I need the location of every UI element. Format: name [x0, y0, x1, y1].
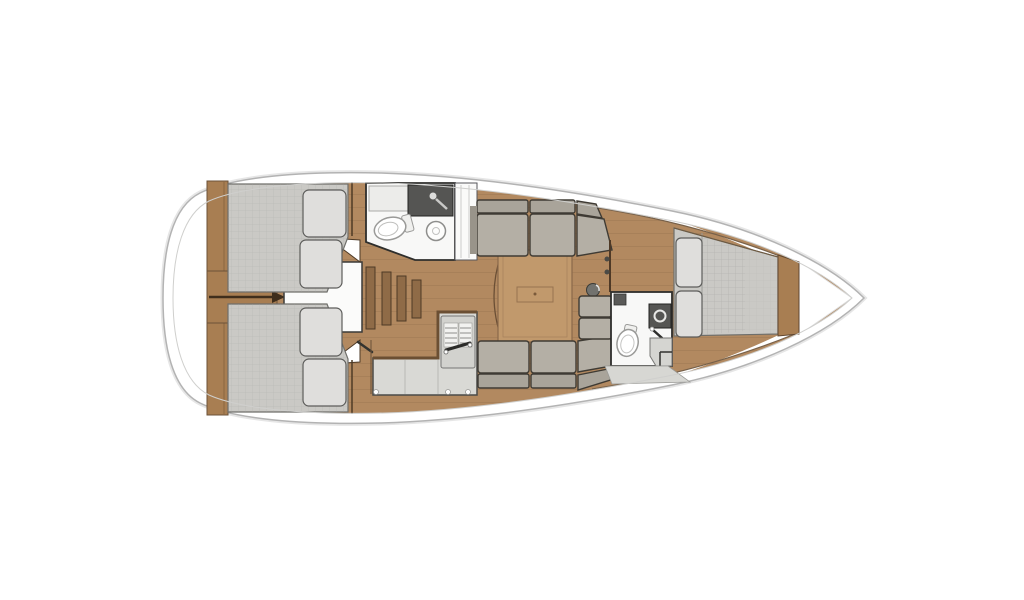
faucet-tip	[650, 327, 654, 331]
door-hinge	[605, 270, 610, 275]
l-seat	[579, 296, 612, 339]
berth-quilting-light	[745, 247, 778, 334]
aft-head	[366, 183, 477, 260]
counter-hinge	[466, 390, 471, 395]
counter-hinge	[374, 390, 379, 395]
backrest-cushion	[477, 200, 528, 213]
counter-hinge	[446, 390, 451, 395]
seat-cushion	[477, 214, 528, 256]
sofa-port	[470, 200, 612, 256]
step-riser	[366, 267, 375, 329]
backrest-cushion	[478, 374, 529, 388]
aft-cabin-starboard	[228, 304, 352, 414]
wall-cabinet	[614, 294, 626, 305]
pillows	[676, 238, 702, 337]
door-hinge	[605, 257, 610, 262]
pillow	[676, 291, 702, 337]
bow-trim	[778, 255, 799, 336]
shower-tray	[369, 186, 408, 211]
pillow	[300, 240, 342, 288]
pillow	[303, 359, 346, 406]
stove-knob	[444, 350, 448, 354]
stove-knob	[468, 343, 472, 347]
seat-cushion	[579, 296, 612, 317]
seat-cushion	[579, 318, 612, 339]
sofa-starboard	[478, 336, 617, 390]
step-riser	[412, 280, 421, 318]
saloon-table	[498, 250, 572, 342]
pillow	[303, 190, 346, 237]
step-riser	[382, 272, 391, 325]
boat-layout-canvas	[0, 0, 1024, 600]
berth-quilting	[702, 235, 745, 335]
deck-plan-svg	[0, 0, 1024, 600]
sink-counter	[408, 185, 453, 216]
aft-cabin-port	[228, 182, 352, 292]
sofa-arm	[470, 206, 477, 254]
seat-cushion	[530, 214, 575, 256]
step-riser	[397, 276, 406, 321]
round-basin	[427, 222, 446, 241]
vanity	[649, 304, 671, 328]
table-latch	[534, 293, 537, 296]
faucet-base	[429, 192, 437, 200]
seat-cushion	[531, 341, 576, 373]
backrest-cushion	[531, 374, 576, 388]
pillow	[676, 238, 702, 287]
seat-cushion	[478, 341, 529, 373]
pillow	[300, 308, 342, 356]
